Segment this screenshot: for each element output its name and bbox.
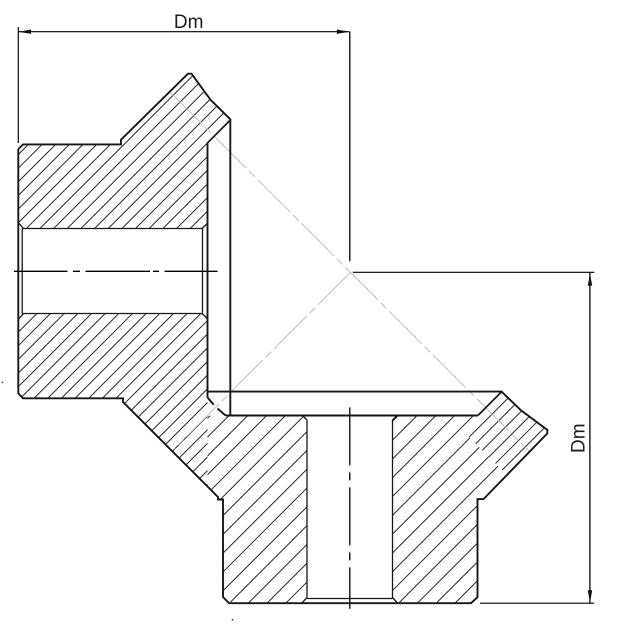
svg-text:Dm: Dm bbox=[174, 12, 204, 33]
svg-text:Dm: Dm bbox=[569, 423, 590, 453]
